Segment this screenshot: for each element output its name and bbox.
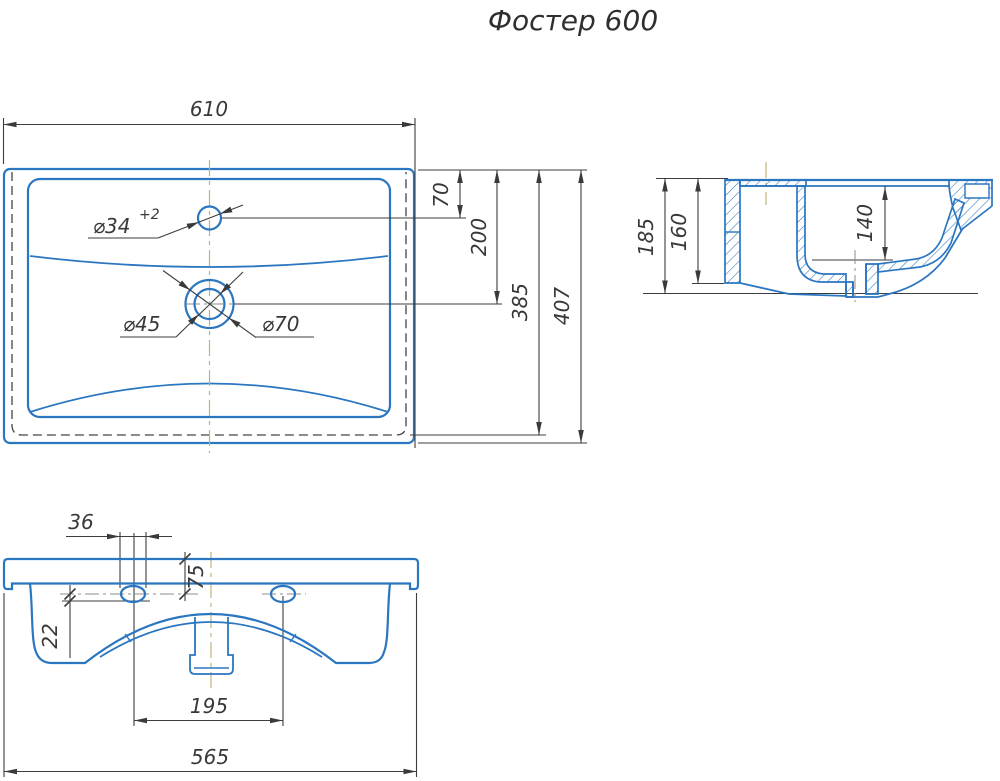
- side-view: 185 160 140: [634, 162, 993, 302]
- svg-text:⌀34: ⌀34: [93, 214, 131, 238]
- dimension-185: 185: [634, 179, 668, 294]
- dimension-407: 407: [550, 170, 584, 443]
- dimension-160: 160: [667, 179, 701, 284]
- section-drain-wall-right: [866, 264, 878, 294]
- svg-text:160: 160: [667, 213, 691, 251]
- section-drain-wall-left: [846, 282, 853, 297]
- svg-text:75: 75: [184, 564, 208, 589]
- drawing-sheet: Фостер 600 610: [0, 0, 1000, 781]
- svg-text:36: 36: [68, 510, 93, 534]
- svg-text:70: 70: [429, 182, 453, 207]
- svg-text:+2: +2: [139, 207, 160, 223]
- dimension-70: 70: [429, 170, 463, 218]
- dimension-140: 140: [853, 186, 888, 260]
- dimension-385: 385: [508, 170, 542, 435]
- section-basin-back-channel: [797, 186, 846, 282]
- front-view: 36 75 22 195 565: [4, 510, 418, 777]
- drawing-title: Фостер 600: [488, 4, 658, 37]
- svg-text:185: 185: [634, 218, 658, 256]
- svg-text:22: 22: [38, 623, 62, 648]
- svg-text:407: 407: [550, 287, 574, 325]
- svg-text:195: 195: [190, 694, 228, 718]
- front-body-outline: [30, 584, 390, 664]
- svg-text:385: 385: [508, 283, 532, 321]
- technical-drawing: Фостер 600 610: [0, 0, 1000, 781]
- top-view: 610 70 200 385: [4, 97, 588, 453]
- svg-text:200: 200: [467, 218, 491, 256]
- svg-text:610: 610: [190, 97, 228, 121]
- svg-text:⌀45: ⌀45: [123, 312, 161, 336]
- svg-text:140: 140: [853, 204, 877, 242]
- dimension-36: 36: [66, 510, 172, 539]
- svg-text:565: 565: [191, 745, 229, 769]
- dimension-200: 200: [467, 170, 500, 304]
- svg-text:⌀70: ⌀70: [262, 312, 300, 336]
- front-rim-notch: [965, 184, 989, 198]
- dimension-22: 22: [38, 585, 76, 658]
- section-front-wall: [878, 199, 964, 272]
- dimension-195: 195: [134, 694, 283, 723]
- dimension-565: 565: [4, 593, 417, 777]
